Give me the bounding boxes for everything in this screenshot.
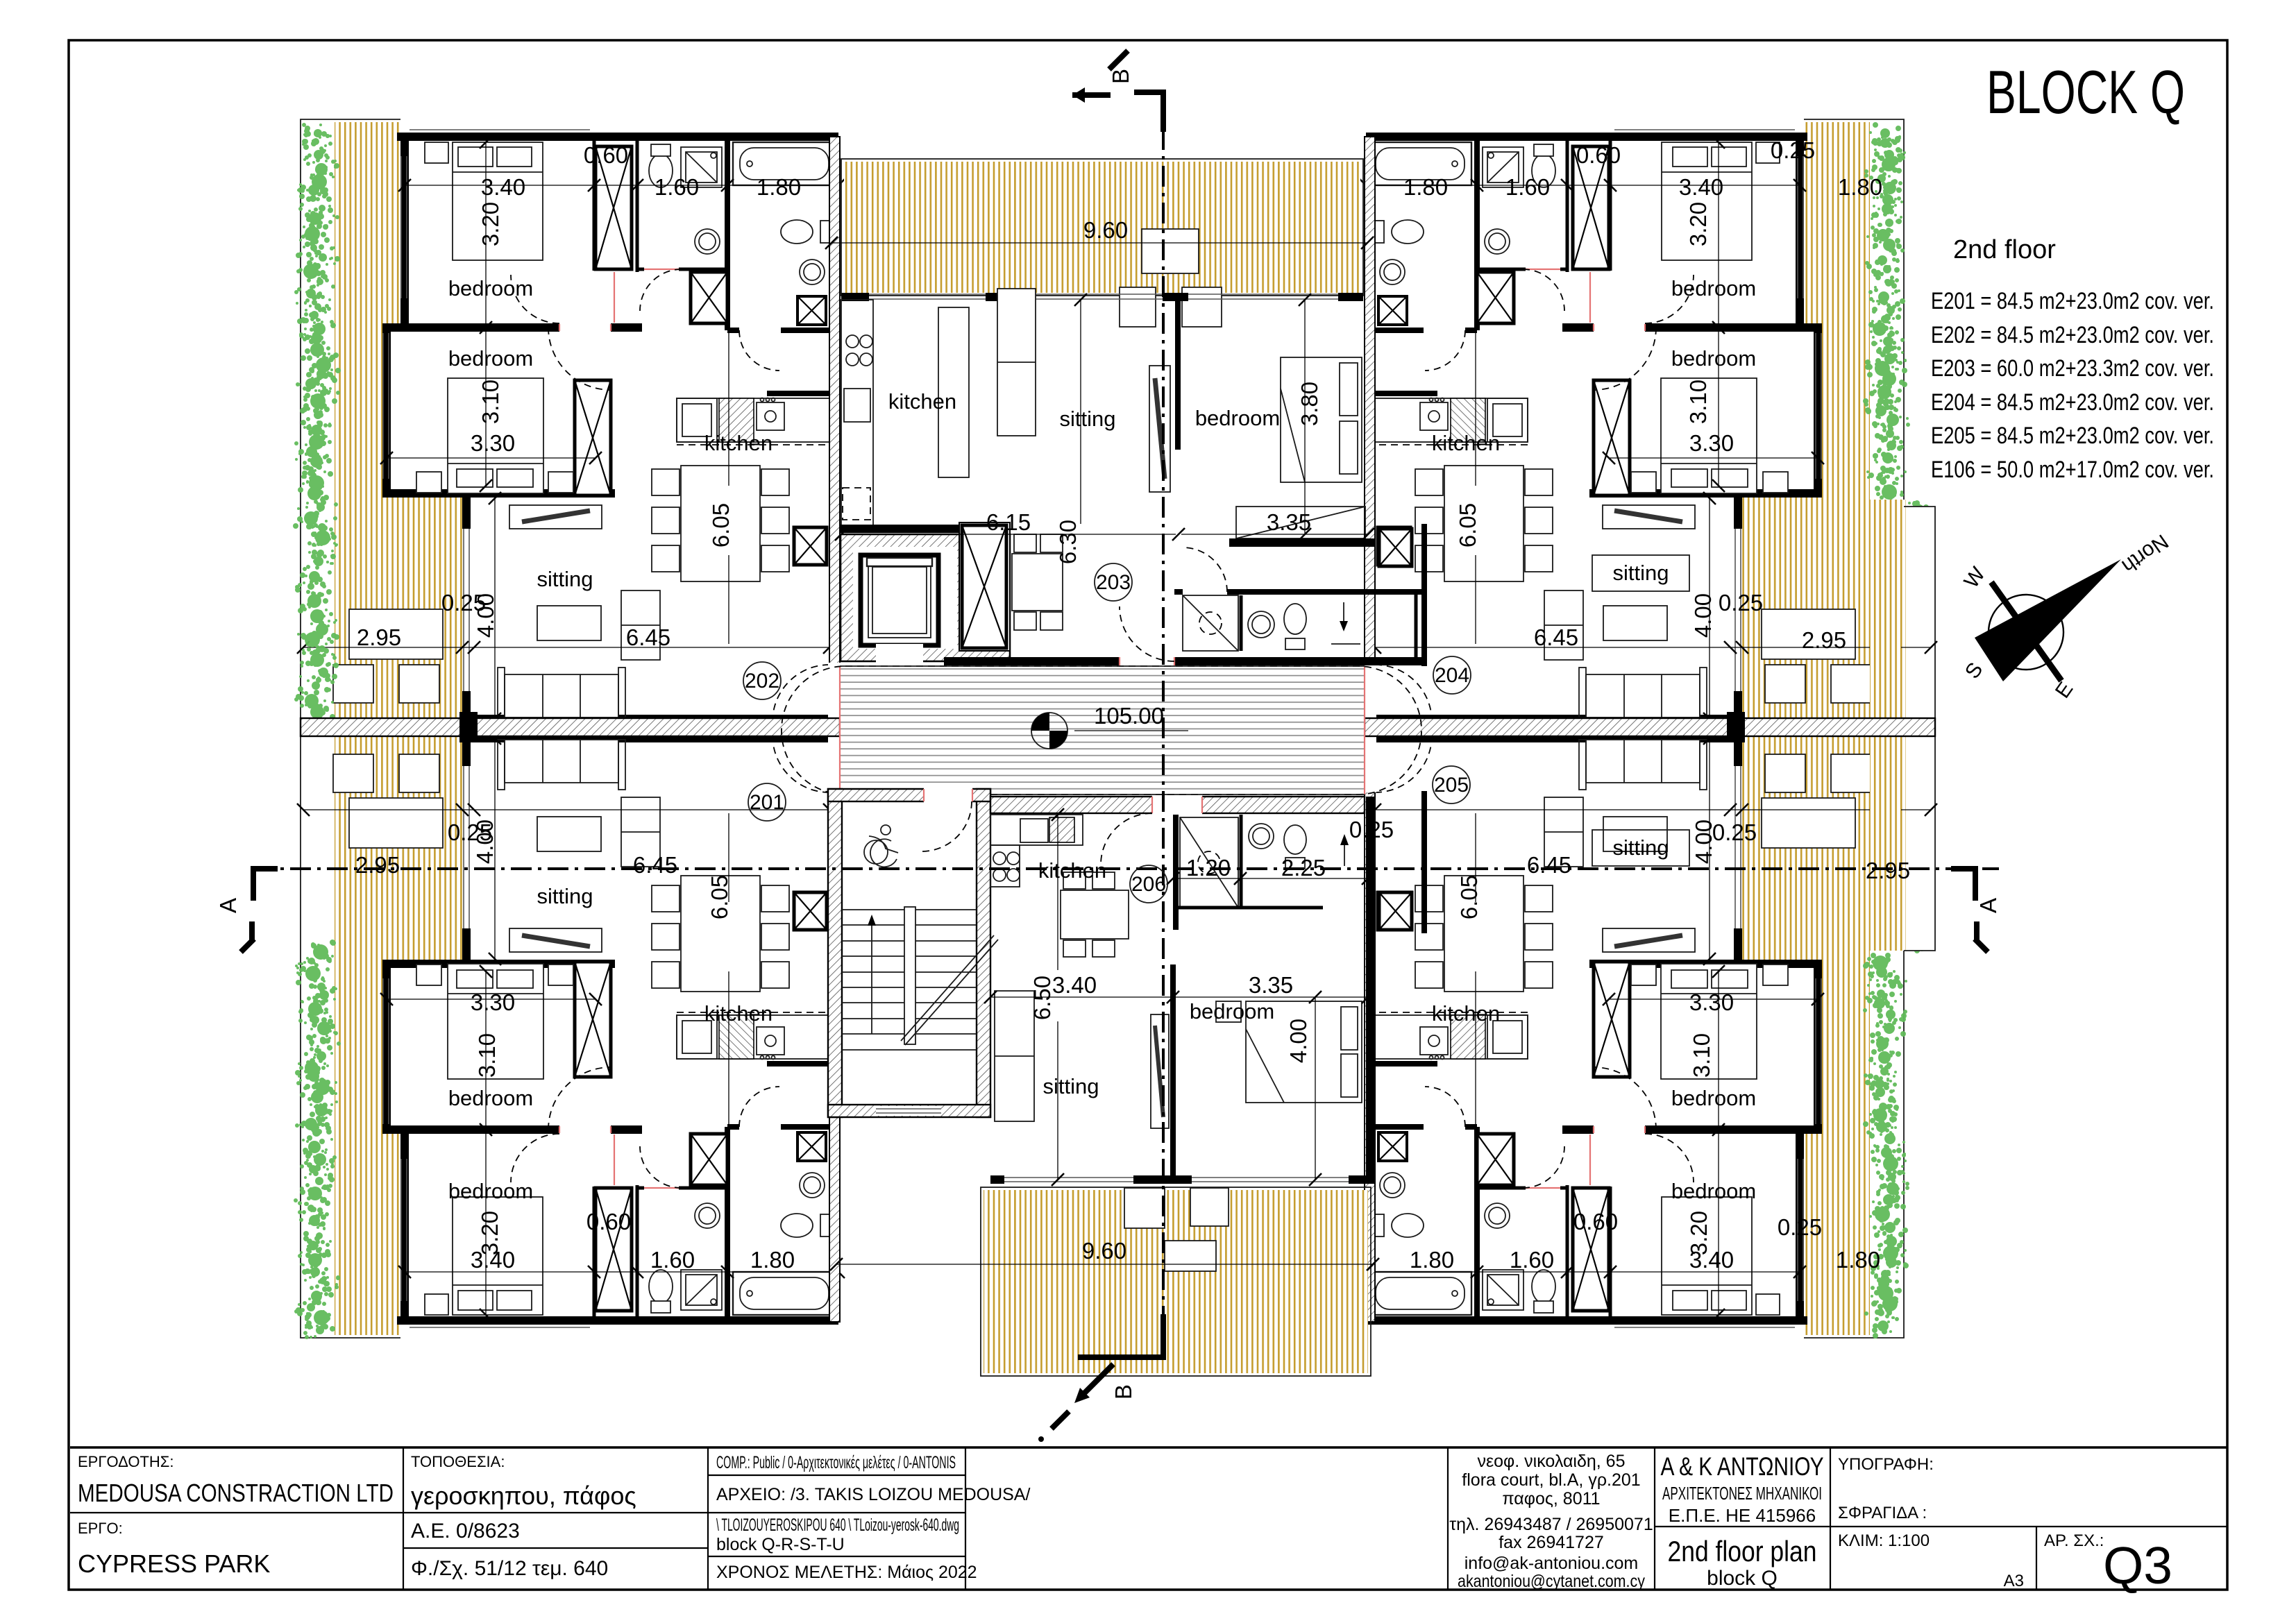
svg-text:E106 = 50.0 m2+17.0m2 cov. ver: E106 = 50.0 m2+17.0m2 cov. ver. <box>1931 457 2214 483</box>
svg-text:3.10: 3.10 <box>1689 1033 1714 1078</box>
svg-text:παφος, 8011: παφος, 8011 <box>1502 1489 1600 1509</box>
svg-text:B: B <box>1111 1384 1136 1400</box>
svg-text:4.00: 4.00 <box>1691 819 1716 864</box>
svg-text:3.40: 3.40 <box>481 174 525 200</box>
svg-text:9.60: 9.60 <box>1083 217 1128 243</box>
svg-text:6.05: 6.05 <box>707 875 732 919</box>
svg-text:4.00: 4.00 <box>472 819 498 864</box>
svg-text:1.60: 1.60 <box>1510 1247 1554 1273</box>
svg-text:3.30: 3.30 <box>471 430 515 456</box>
svg-text:ΑΡΧΕΙΟ: /3. TAKIS LOIZOU MEDOU: ΑΡΧΕΙΟ: /3. TAKIS LOIZOU MEDOUSA/ <box>716 1485 1030 1504</box>
svg-text:bedroom: bedroom <box>1671 1179 1756 1203</box>
svg-text:206: 206 <box>1131 873 1166 896</box>
svg-text:E205 = 84.5 m2+23.0m2 cov. ver: E205 = 84.5 m2+23.0m2 cov. ver. <box>1931 423 2214 449</box>
svg-text:ΑΡΧΙΤΕΚΤΟΝΕΣ ΜΗΧΑΝΙΚΟΙ: ΑΡΧΙΤΕΚΤΟΝΕΣ ΜΗΧΑΝΙΚΟΙ <box>1662 1483 1822 1504</box>
svg-text:fax 26941727: fax 26941727 <box>1499 1533 1604 1552</box>
svg-text:0.25: 0.25 <box>1712 819 1757 845</box>
svg-text:6.45: 6.45 <box>1534 624 1578 650</box>
svg-text:6.05: 6.05 <box>708 503 734 547</box>
svg-text:bedroom: bedroom <box>1195 406 1280 430</box>
svg-text:E204 = 84.5 m2+23.0m2 cov. ver: E204 = 84.5 m2+23.0m2 cov. ver. <box>1931 389 2214 416</box>
svg-text:BLOCK Q: BLOCK Q <box>1986 58 2185 126</box>
svg-text:kitchen: kitchen <box>704 431 773 455</box>
svg-text:6.50: 6.50 <box>1029 976 1055 1020</box>
svg-text:3.10: 3.10 <box>474 1033 500 1078</box>
svg-text:2.95: 2.95 <box>355 852 400 878</box>
svg-text:bedroom: bedroom <box>448 276 533 300</box>
svg-text:akantoniou@cytanet.com.cy: akantoniou@cytanet.com.cy <box>1458 1572 1645 1591</box>
svg-text:ΑΡ. ΣΧ.:: ΑΡ. ΣΧ.: <box>2044 1531 2104 1550</box>
svg-text:1.80: 1.80 <box>757 174 801 200</box>
svg-text:2.25: 2.25 <box>1281 855 1326 881</box>
svg-text:201: 201 <box>750 791 784 814</box>
svg-text:0.25: 0.25 <box>1771 137 1815 163</box>
svg-text:2.95: 2.95 <box>357 624 401 650</box>
svg-text:1.60: 1.60 <box>655 174 699 200</box>
svg-text:ΕΡΓΟ:: ΕΡΓΟ: <box>78 1520 123 1537</box>
svg-text:6.45: 6.45 <box>633 852 677 878</box>
svg-text:2nd floor: 2nd floor <box>1953 235 2056 264</box>
svg-text:kitchen: kitchen <box>888 389 956 414</box>
svg-text:3.20: 3.20 <box>1685 202 1711 246</box>
svg-text:202: 202 <box>745 670 779 692</box>
svg-text:1.80: 1.80 <box>1838 174 1882 200</box>
svg-text:6.05: 6.05 <box>1456 875 1482 919</box>
svg-text:0.60: 0.60 <box>586 1209 631 1234</box>
svg-text:3.30: 3.30 <box>1689 989 1734 1015</box>
svg-text:τηλ. 26943487 / 26950071: τηλ. 26943487 / 26950071 <box>1449 1515 1653 1534</box>
svg-text:ΤΟΠΟΘΕΣΙΑ:: ΤΟΠΟΘΕΣΙΑ: <box>411 1453 505 1470</box>
svg-text:bedroom: bedroom <box>1671 276 1756 300</box>
svg-text:Α & Κ ΑΝΤΩΝΙΟΥ: Α & Κ ΑΝΤΩΝΙΟΥ <box>1661 1452 1824 1481</box>
svg-text:3.10: 3.10 <box>478 380 503 424</box>
svg-text:block Q: block Q <box>1707 1567 1778 1590</box>
svg-text:bedroom: bedroom <box>1671 346 1756 371</box>
svg-text:sitting: sitting <box>1043 1074 1099 1098</box>
svg-text:Ε.Π.Ε. HE 415966: Ε.Π.Ε. HE 415966 <box>1669 1505 1816 1526</box>
svg-text:B: B <box>1108 69 1133 84</box>
svg-text:ΧΡΟΝΟΣ ΜΕΛΕΤΗΣ: Μάιος 2022: ΧΡΟΝΟΣ ΜΕΛΕΤΗΣ: Μάιος 2022 <box>716 1563 977 1582</box>
svg-text:Φ./Σχ. 51/12 τεμ. 640: Φ./Σχ. 51/12 τεμ. 640 <box>411 1557 608 1580</box>
svg-text:0.60: 0.60 <box>1573 1209 1618 1234</box>
svg-text:6.45: 6.45 <box>626 624 670 650</box>
svg-text:bedroom: bedroom <box>1190 999 1274 1023</box>
svg-text:γεροσκηπου, πάφος: γεροσκηπου, πάφος <box>411 1481 636 1510</box>
svg-text:1.60: 1.60 <box>1505 174 1550 200</box>
svg-text:203: 203 <box>1096 571 1131 594</box>
svg-text:0.25: 0.25 <box>1719 590 1763 615</box>
svg-text:1.80: 1.80 <box>1410 1247 1454 1273</box>
svg-text:kitchen: kitchen <box>1432 431 1500 455</box>
svg-text:1.80: 1.80 <box>1836 1247 1880 1273</box>
svg-text:3.35: 3.35 <box>1267 509 1311 535</box>
svg-text:ΕΡΓΟΔΟΤΗΣ:: ΕΡΓΟΔΟΤΗΣ: <box>78 1453 174 1470</box>
svg-text:kitchen: kitchen <box>1432 1001 1500 1026</box>
svg-text:1.80: 1.80 <box>1403 174 1448 200</box>
svg-text:0.25: 0.25 <box>1778 1214 1822 1240</box>
svg-text:sitting: sitting <box>1613 835 1669 860</box>
svg-text:ΚΛΙΜ: 1:100: ΚΛΙΜ: 1:100 <box>1838 1531 1930 1550</box>
svg-text:flora court, bl.A, γρ.201: flora court, bl.A, γρ.201 <box>1462 1470 1640 1490</box>
svg-text:\ TLOIZOUYEROSKIPOU 640 \ TLoi: \ TLOIZOUYEROSKIPOU 640 \ TLoizou-yerosk… <box>716 1515 959 1535</box>
svg-text:3.40: 3.40 <box>1679 174 1723 200</box>
svg-text:3.35: 3.35 <box>1249 972 1293 998</box>
svg-text:0.25: 0.25 <box>1349 817 1394 842</box>
svg-text:9.60: 9.60 <box>1082 1238 1126 1264</box>
svg-text:3.40: 3.40 <box>1052 972 1097 998</box>
svg-text:2.95: 2.95 <box>1866 858 1910 883</box>
svg-text:ΣΦΡΑΓΙΔΑ :: ΣΦΡΑΓΙΔΑ : <box>1838 1504 1927 1522</box>
svg-text:bedroom: bedroom <box>448 1086 533 1110</box>
svg-text:4.00: 4.00 <box>1690 593 1716 638</box>
svg-text:E203 = 60.0 m2+23.3m2 cov. ver: E203 = 60.0 m2+23.3m2 cov. ver. <box>1931 355 2214 382</box>
svg-text:2.95: 2.95 <box>1802 627 1846 653</box>
svg-text:A: A <box>215 898 241 913</box>
svg-text:4.00: 4.00 <box>1285 1019 1311 1063</box>
svg-text:3.20: 3.20 <box>478 202 503 246</box>
svg-text:MEDOUSA CONSTRACTION LTD: MEDOUSA CONSTRACTION LTD <box>78 1479 394 1507</box>
svg-text:info@ak-antoniou.com: info@ak-antoniou.com <box>1464 1554 1639 1573</box>
svg-text:sitting: sitting <box>1060 407 1116 431</box>
svg-text:6.45: 6.45 <box>1527 852 1571 878</box>
svg-text:3.20: 3.20 <box>477 1211 503 1255</box>
svg-text:1.20: 1.20 <box>1186 855 1231 881</box>
svg-text:6.30: 6.30 <box>1055 520 1081 564</box>
svg-text:1.80: 1.80 <box>750 1247 795 1273</box>
svg-text:Q3: Q3 <box>2103 1536 2172 1595</box>
svg-text:bedroom: bedroom <box>1671 1086 1756 1110</box>
svg-text:3.10: 3.10 <box>1685 380 1711 424</box>
svg-text:0.60: 0.60 <box>584 142 628 168</box>
svg-text:block Q-R-S-T-U: block Q-R-S-T-U <box>716 1535 845 1554</box>
svg-text:bedroom: bedroom <box>448 346 533 371</box>
svg-text:3.30: 3.30 <box>1689 430 1734 456</box>
svg-text:3.20: 3.20 <box>1686 1211 1712 1255</box>
svg-text:3.30: 3.30 <box>471 989 515 1015</box>
svg-text:sitting: sitting <box>537 567 593 591</box>
svg-text:6.15: 6.15 <box>986 509 1031 535</box>
svg-text:kitchen: kitchen <box>1038 858 1106 883</box>
svg-text:sitting: sitting <box>1613 561 1669 585</box>
svg-text:2nd floor plan: 2nd floor plan <box>1668 1535 1817 1567</box>
svg-text:4.00: 4.00 <box>473 593 498 638</box>
svg-text:νεοφ. νικολαιδη, 65: νεοφ. νικολαιδη, 65 <box>1478 1452 1626 1471</box>
svg-text:ΥΠΟΓΡΑΦΗ:: ΥΠΟΓΡΑΦΗ: <box>1838 1455 1934 1474</box>
svg-text:6.05: 6.05 <box>1455 503 1480 547</box>
svg-text:1.60: 1.60 <box>650 1247 695 1273</box>
svg-text:COMP.: Public / 0-Αρχιτεκτονικ: COMP.: Public / 0-Αρχιτεκτονικές μελέτες… <box>716 1453 956 1472</box>
svg-text:kitchen: kitchen <box>704 1001 773 1026</box>
svg-text:sitting: sitting <box>537 884 593 908</box>
svg-text:A3: A3 <box>2004 1572 2024 1590</box>
svg-text:A: A <box>1975 898 2001 913</box>
svg-text:204: 204 <box>1435 664 1469 687</box>
svg-text:0.60: 0.60 <box>1576 142 1621 168</box>
svg-text:bedroom: bedroom <box>448 1179 533 1203</box>
svg-text:Α.Ε. 0/8623: Α.Ε. 0/8623 <box>411 1520 520 1543</box>
svg-text:E202 = 84.5 m2+23.0m2 cov. ver: E202 = 84.5 m2+23.0m2 cov. ver. <box>1931 322 2214 348</box>
svg-text:205: 205 <box>1434 774 1469 797</box>
svg-text:105.00: 105.00 <box>1094 703 1164 729</box>
svg-text:3.80: 3.80 <box>1297 382 1322 426</box>
svg-text:CYPRESS PARK: CYPRESS PARK <box>78 1549 270 1578</box>
svg-text:E201 = 84.5 m2+23.0m2 cov. ver: E201 = 84.5 m2+23.0m2 cov. ver. <box>1931 288 2214 314</box>
